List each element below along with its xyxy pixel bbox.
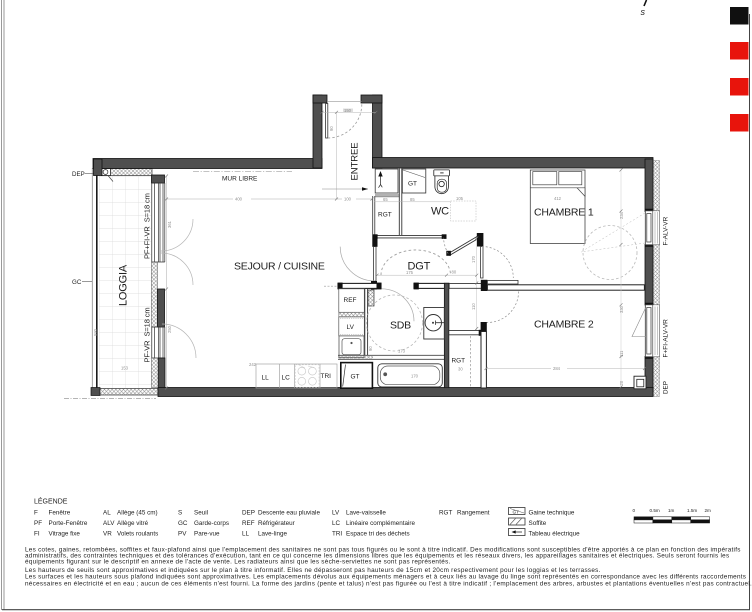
svg-text:65: 65 xyxy=(383,197,388,202)
svg-text:LV: LV xyxy=(332,510,340,517)
svg-text:110: 110 xyxy=(471,303,476,310)
svg-text:85: 85 xyxy=(410,197,415,202)
svg-text:80: 80 xyxy=(452,270,457,275)
svg-text:VR: VR xyxy=(103,531,112,538)
svg-text:LL: LL xyxy=(262,375,270,382)
svg-text:590: 590 xyxy=(93,328,98,336)
svg-text:LL: LL xyxy=(242,531,250,538)
svg-text:RGT: RGT xyxy=(378,212,392,219)
svg-text:ENTREE: ENTREE xyxy=(350,143,361,181)
svg-text:CHAMBRE 2: CHAMBRE 2 xyxy=(534,319,594,331)
svg-text:RGT: RGT xyxy=(439,510,452,517)
svg-text:CHAMBRE 1: CHAMBRE 1 xyxy=(534,207,594,219)
svg-text:S: S xyxy=(178,510,182,517)
svg-text:Garde-corps: Garde-corps xyxy=(194,520,229,527)
svg-text:Tableau électrique: Tableau électrique xyxy=(529,531,581,538)
svg-text:TRI: TRI xyxy=(321,373,332,380)
svg-text:LC: LC xyxy=(282,375,291,382)
svg-text:équipements figurant sur le de: équipements figurant sur le descriptif e… xyxy=(25,559,451,566)
svg-text:nécessaires en électricité et: nécessaires en électricité et en eau ; a… xyxy=(25,581,752,588)
svg-text:Gaine technique: Gaine technique xyxy=(529,510,575,517)
svg-text:LV: LV xyxy=(347,324,355,331)
svg-text:RGT: RGT xyxy=(452,358,466,365)
svg-text:153: 153 xyxy=(121,366,129,371)
svg-text:Rangement: Rangement xyxy=(457,510,490,517)
svg-text:150: 150 xyxy=(344,108,352,113)
svg-text:Pare-vue: Pare-vue xyxy=(194,531,220,538)
svg-text:LOGGIA: LOGGIA xyxy=(118,264,130,306)
svg-text:DEP: DEP xyxy=(72,171,85,178)
svg-text:GC: GC xyxy=(72,279,82,286)
svg-text:Lave-linge: Lave-linge xyxy=(258,531,288,538)
svg-text:Porte-Fenêtre: Porte-Fenêtre xyxy=(49,520,88,527)
svg-text:Seuil: Seuil xyxy=(194,510,208,517)
svg-text:90: 90 xyxy=(329,126,334,131)
svg-text:0.5m: 0.5m xyxy=(650,508,660,513)
svg-text:0: 0 xyxy=(633,508,636,513)
svg-text:Allège vitré: Allège vitré xyxy=(117,520,149,527)
svg-text:242: 242 xyxy=(249,362,257,367)
svg-text:Lave-vaisselle: Lave-vaisselle xyxy=(346,510,386,517)
svg-text:SEJOUR / CUISINE: SEJOUR / CUISINE xyxy=(234,261,325,273)
svg-text:PF+FI-VR S=18 cm: PF+FI-VR S=18 cm xyxy=(143,193,152,259)
svg-text:412: 412 xyxy=(554,196,562,201)
svg-text:175: 175 xyxy=(406,270,414,275)
svg-text:170: 170 xyxy=(411,374,419,379)
svg-text:REF: REF xyxy=(242,520,255,527)
svg-text:MUR LIBRE: MUR LIBRE xyxy=(222,176,258,183)
svg-text:Les surfaces et les hauteurs s: Les surfaces et les hauteurs sous plafon… xyxy=(25,574,746,581)
svg-text:REF: REF xyxy=(344,297,357,304)
svg-text:173: 173 xyxy=(398,349,406,354)
svg-text:SDB: SDB xyxy=(390,320,411,332)
svg-text:F-ALV-VR: F-ALV-VR xyxy=(663,216,670,245)
svg-text:Allège (45 cm): Allège (45 cm) xyxy=(117,510,158,517)
svg-text:1.5m: 1.5m xyxy=(687,508,697,513)
svg-text:s: s xyxy=(641,7,646,17)
svg-text:GC: GC xyxy=(178,520,188,527)
svg-text:PV: PV xyxy=(178,531,187,538)
svg-text:LÉGENDE: LÉGENDE xyxy=(34,497,68,506)
svg-text:Descente eau pluviale: Descente eau pluviale xyxy=(258,510,320,517)
svg-text:F+FI-ALV-VR: F+FI-ALV-VR xyxy=(663,319,670,358)
svg-text:Réfrigérateur: Réfrigérateur xyxy=(258,520,295,527)
svg-text:Linéaire complémentaire: Linéaire complémentaire xyxy=(346,520,415,527)
svg-text:FI: FI xyxy=(34,531,40,538)
svg-text:GT: GT xyxy=(513,509,520,514)
svg-text:90: 90 xyxy=(368,346,373,351)
svg-text:Soffite: Soffite xyxy=(529,520,547,527)
svg-text:105: 105 xyxy=(456,196,464,201)
svg-text:361: 361 xyxy=(167,220,172,228)
svg-text:100: 100 xyxy=(344,197,352,202)
svg-text:GT: GT xyxy=(351,374,360,381)
svg-text:WC: WC xyxy=(431,206,449,218)
svg-text:GT: GT xyxy=(408,181,417,188)
svg-text:PF-VR S=18 cm: PF-VR S=18 cm xyxy=(143,307,152,362)
svg-text:AL: AL xyxy=(103,510,111,517)
svg-text:TRI: TRI xyxy=(332,531,342,538)
svg-text:F: F xyxy=(34,510,38,517)
svg-text:Fenêtre: Fenêtre xyxy=(49,510,71,517)
svg-text:400: 400 xyxy=(235,197,243,202)
svg-text:Volets roulants: Volets roulants xyxy=(117,531,158,538)
svg-text:DEP: DEP xyxy=(663,381,670,394)
svg-text:Espace tri des déchets: Espace tri des déchets xyxy=(346,531,410,538)
svg-text:250: 250 xyxy=(167,325,172,333)
svg-text:30: 30 xyxy=(458,367,463,372)
svg-text:20: 20 xyxy=(619,380,624,385)
svg-text:Vitrage fixe: Vitrage fixe xyxy=(49,531,81,538)
svg-text:170: 170 xyxy=(471,255,476,263)
svg-text:LC: LC xyxy=(332,520,341,527)
svg-text:284: 284 xyxy=(553,366,561,371)
svg-text:DEP: DEP xyxy=(242,510,255,517)
svg-text:PF: PF xyxy=(34,520,42,527)
svg-text:1m: 1m xyxy=(668,508,675,513)
svg-text:2m: 2m xyxy=(705,508,712,513)
svg-text:ALV: ALV xyxy=(103,520,115,527)
svg-text:330: 330 xyxy=(619,305,624,313)
